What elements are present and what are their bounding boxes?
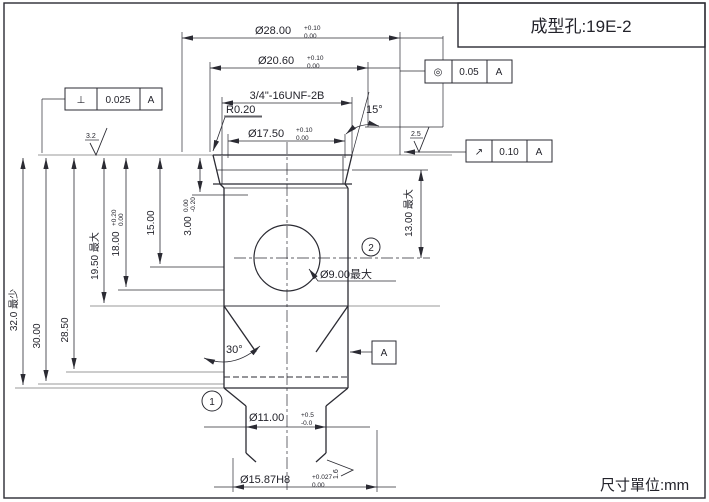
dim-od-206: Ø20.60 [258, 55, 294, 67]
dim-height-15: 15.00 [146, 210, 157, 235]
gdt-concentricity-frame: ◎ 0.05 A [425, 60, 512, 83]
dim-od-1587: Ø15.87H8 [240, 474, 290, 486]
dim-height-195max: 19.50 最大 [88, 232, 101, 280]
dim-od-11-tol-dn: -0.0 [301, 420, 313, 427]
dim-od-28-tol-dn: 0.00 [304, 33, 317, 40]
svg-text:A: A [148, 95, 155, 106]
engineering-drawing-page: 成型孔:19E-2 尺寸單位:mm [0, 0, 709, 502]
gdt-runout-frame: ↗ 0.10 A [466, 140, 552, 162]
dim-od-1587-tol-up: +0.027 [312, 474, 332, 481]
balloon-1: 1 [209, 397, 215, 408]
datum-a-flag: A [372, 341, 396, 364]
gdt-frames: ⊥ 0.025 A ◎ 0.05 A ↗ 0.10 A A [42, 60, 552, 364]
dim-radius-r020: R0.20 [226, 104, 255, 116]
svg-text:0.00: 0.00 [118, 213, 125, 226]
dim-od-1587-tol-dn: 0.00 [312, 482, 325, 489]
centerlines [234, 142, 430, 490]
svg-text:0.00: 0.00 [183, 199, 190, 212]
dim-od-175-tol-up: +0.10 [296, 127, 313, 134]
dim-angle-30: 30° [226, 344, 243, 356]
dim-od-11-tol-up: +0.5 [301, 412, 314, 419]
dim-thread-spec: 3/4"-16UNF-2B [250, 90, 325, 102]
svg-text:2.5: 2.5 [411, 131, 421, 138]
dim-od-11: Ø11.00 [249, 412, 284, 424]
units-note: 尺寸單位:mm [600, 477, 689, 494]
concentricity-icon: ◎ [434, 67, 443, 78]
dim-angle-15: 15° [366, 104, 383, 116]
balloon-2: 2 [368, 243, 374, 254]
dim-od-175: Ø17.50 [248, 128, 284, 140]
dim-od-206-tol-up: +0.10 [307, 55, 324, 62]
dim-height-18: 18.00 +0.20 0.00 [111, 209, 125, 256]
balloons: 1 2 [202, 238, 380, 411]
svg-text:+0.20: +0.20 [111, 209, 118, 226]
surface-finish-marks: 3.2 2.5 1.6 [85, 127, 429, 479]
dim-height-32min: 32.0 最少 [8, 289, 20, 331]
dim-height-3: 3.00 0.00 -0.20 [183, 197, 197, 236]
page-border [4, 3, 705, 498]
dim-height-13max: 13.00 最大 [402, 189, 415, 237]
drawing-title: 成型孔:19E-2 [530, 17, 631, 36]
svg-text:18.00: 18.00 [111, 231, 122, 256]
dim-od-175-tol-dn: 0.00 [296, 135, 309, 142]
svg-text:1.6: 1.6 [333, 469, 340, 479]
svg-text:A: A [496, 67, 503, 78]
dim-od-28-tol-up: +0.10 [304, 25, 321, 32]
svg-text:3.2: 3.2 [86, 133, 96, 140]
surface-finish-right: 2.5 [410, 127, 429, 152]
dim-height-30: 30.00 [32, 323, 43, 348]
dim-hole-d9: Ø9.00最大 [320, 267, 372, 281]
runout-icon: ↗ [475, 147, 483, 158]
perpendicularity-icon: ⊥ [77, 95, 86, 106]
technical-drawing: 成型孔:19E-2 尺寸單位:mm [0, 0, 709, 502]
svg-text:-0.20: -0.20 [190, 197, 197, 212]
svg-text:A: A [381, 348, 388, 359]
dim-od-28: Ø28.00 [255, 25, 291, 37]
svg-text:A: A [536, 147, 543, 158]
svg-text:0.05: 0.05 [459, 67, 479, 78]
dim-od-206-tol-dn: 0.00 [307, 63, 320, 70]
svg-text:3.00: 3.00 [183, 216, 194, 236]
dimension-texts-horizontal: Ø28.00 +0.10 0.00 Ø20.60 +0.10 0.00 3/4"… [224, 25, 383, 489]
svg-text:0.025: 0.025 [105, 95, 130, 106]
svg-text:0.10: 0.10 [499, 147, 519, 158]
surface-finish-top: 3.2 [85, 128, 107, 155]
gdt-perpendicularity-frame: ⊥ 0.025 A [42, 88, 162, 153]
dim-height-285: 28.50 [60, 317, 71, 342]
